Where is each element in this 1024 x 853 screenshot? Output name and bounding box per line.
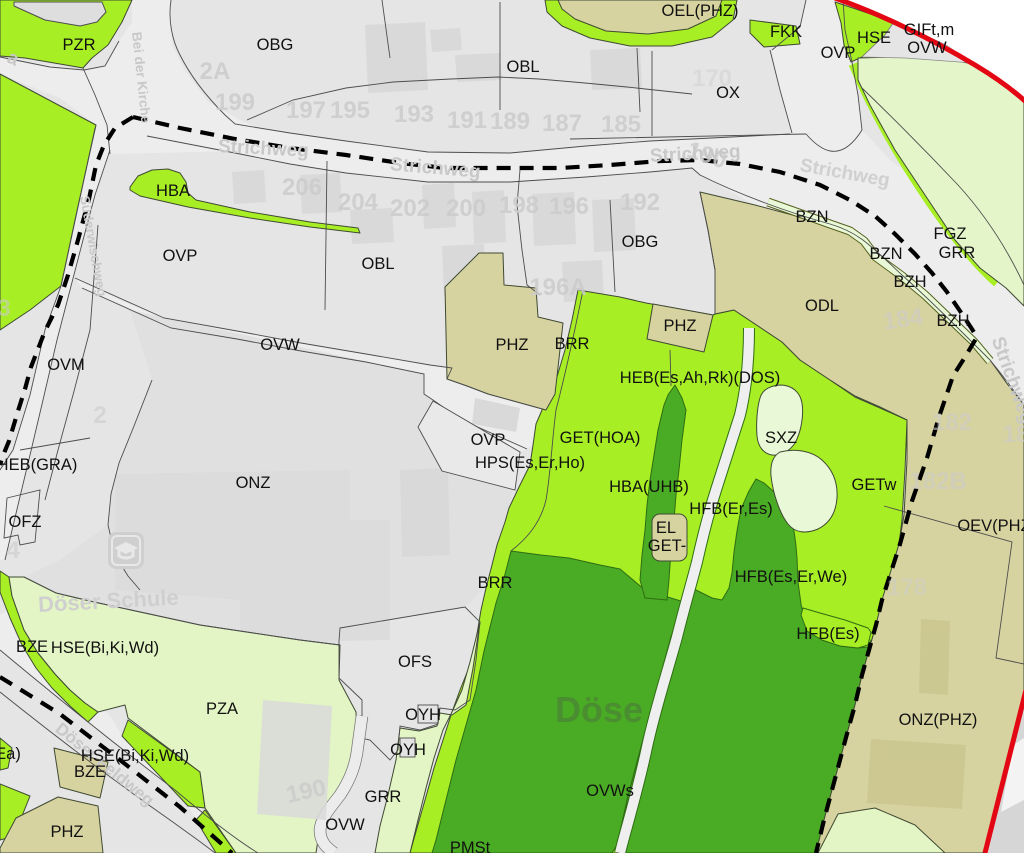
svg-text:PZR: PZR: [63, 36, 96, 54]
svg-text:196: 196: [549, 193, 589, 220]
svg-text:GRR: GRR: [939, 244, 976, 262]
svg-text:2A: 2A: [200, 58, 231, 85]
svg-text:ONZ(PHZ): ONZ(PHZ): [899, 711, 978, 729]
svg-text:HBA: HBA: [156, 182, 190, 200]
svg-text:HEB(GRA): HEB(GRA): [0, 456, 77, 474]
svg-text:HSE(Bi,Ki,Wd): HSE(Bi,Ki,Wd): [51, 639, 159, 657]
svg-text:BZN: BZN: [870, 245, 903, 263]
svg-text:OYH: OYH: [390, 741, 426, 759]
svg-text:GET-: GET-: [648, 537, 687, 555]
svg-text:HFB(Er,Es): HFB(Er,Es): [689, 500, 772, 518]
svg-text:BZN: BZN: [796, 208, 829, 226]
svg-text:191: 191: [447, 107, 487, 134]
svg-text:Ea): Ea): [0, 745, 21, 763]
svg-text:OVP: OVP: [163, 247, 198, 265]
svg-text:GETw: GETw: [852, 476, 897, 494]
svg-text:HPS(Es,Er,Ho): HPS(Es,Er,Ho): [475, 454, 585, 472]
svg-text:198: 198: [499, 192, 539, 219]
svg-text:PHZ: PHZ: [496, 336, 529, 354]
svg-text:GIFt,m: GIFt,m: [904, 21, 954, 39]
svg-text:BRR: BRR: [478, 574, 513, 592]
svg-text:195: 195: [330, 97, 370, 124]
svg-text:GRR: GRR: [365, 788, 402, 806]
svg-text:4: 4: [6, 537, 20, 564]
svg-text:BZH: BZH: [937, 312, 970, 330]
svg-text:OX: OX: [716, 84, 740, 102]
svg-text:OVWs: OVWs: [586, 782, 634, 800]
svg-text:184: 184: [881, 303, 925, 335]
svg-text:182: 182: [932, 409, 972, 436]
svg-text:BRR: BRR: [555, 335, 590, 353]
svg-text:OVW: OVW: [325, 816, 365, 834]
svg-text:189: 189: [490, 108, 530, 135]
svg-text:3: 3: [0, 295, 11, 322]
svg-text:OVM: OVM: [47, 356, 85, 374]
svg-text:OFZ: OFZ: [9, 513, 42, 531]
svg-text:192: 192: [620, 189, 660, 216]
svg-text:185: 185: [601, 111, 641, 138]
svg-text:OEL(PHZ): OEL(PHZ): [661, 2, 738, 20]
svg-text:ONZ: ONZ: [236, 474, 271, 492]
svg-text:OBL: OBL: [506, 58, 539, 76]
svg-text:PMSt: PMSt: [450, 839, 491, 853]
svg-text:PZA: PZA: [206, 700, 238, 718]
svg-text:FKK: FKK: [770, 23, 802, 41]
svg-text:BZH: BZH: [894, 273, 927, 291]
svg-text:PHZ: PHZ: [51, 823, 84, 841]
svg-text:OFS: OFS: [398, 653, 432, 671]
svg-text:OBG: OBG: [257, 36, 294, 54]
svg-text:204: 204: [338, 189, 379, 216]
svg-text:HSE: HSE: [857, 29, 891, 47]
svg-text:ODL: ODL: [805, 297, 839, 315]
svg-text:182B: 182B: [909, 468, 966, 495]
svg-text:HBA(UHB): HBA(UHB): [609, 478, 689, 496]
svg-text:EL: EL: [656, 519, 676, 537]
svg-text:OVW: OVW: [907, 39, 947, 57]
svg-text:OVW: OVW: [260, 336, 300, 354]
svg-text:BZE: BZE: [74, 763, 106, 781]
svg-text:PHZ: PHZ: [664, 317, 697, 335]
svg-text:196A: 196A: [529, 274, 586, 301]
svg-text:HFB(Es): HFB(Es): [796, 625, 859, 643]
svg-text:OVP: OVP: [821, 44, 856, 62]
svg-text:OYH: OYH: [405, 706, 441, 724]
svg-text:178: 178: [887, 574, 927, 601]
svg-text:HFB(Es,Er,We): HFB(Es,Er,We): [735, 568, 847, 586]
svg-text:SXZ: SXZ: [765, 429, 797, 447]
svg-text:BZE: BZE: [16, 638, 48, 656]
svg-text:202: 202: [390, 195, 430, 222]
svg-text:FGZ: FGZ: [934, 225, 967, 243]
svg-text:193: 193: [394, 101, 434, 128]
svg-text:206: 206: [282, 174, 322, 201]
svg-text:OBG: OBG: [622, 233, 659, 251]
svg-text:199: 199: [215, 89, 255, 116]
svg-text:OVP: OVP: [471, 431, 506, 449]
svg-text:2: 2: [93, 402, 106, 429]
svg-text:Döse: Döse: [555, 689, 643, 730]
svg-text:187: 187: [542, 110, 582, 137]
svg-text:OBL: OBL: [361, 255, 394, 273]
svg-text:HEB(Es,Ah,Rk)(DOS): HEB(Es,Ah,Rk)(DOS): [620, 369, 780, 387]
svg-text:OEV(PHZ: OEV(PHZ: [957, 517, 1024, 535]
svg-text:200: 200: [446, 195, 486, 222]
svg-text:197: 197: [286, 97, 326, 124]
svg-text:GET(HOA): GET(HOA): [560, 429, 641, 447]
